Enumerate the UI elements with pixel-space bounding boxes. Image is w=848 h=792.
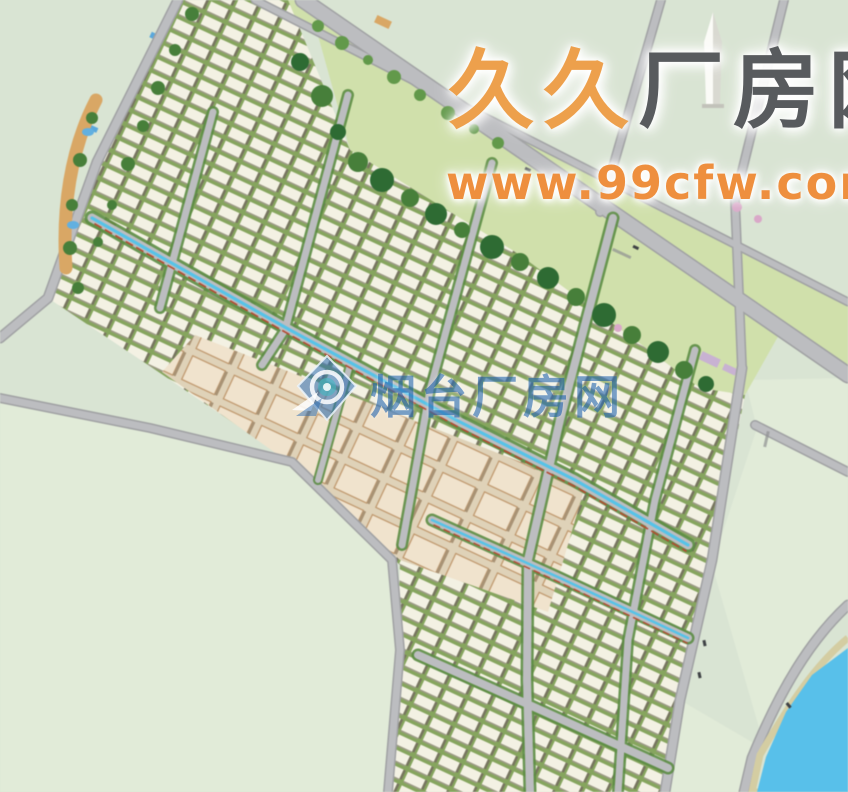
pond <box>82 128 94 136</box>
watermark-brand-orange: 久久 <box>448 41 638 141</box>
compass-diamond-logo-icon <box>292 350 362 438</box>
watermark-brand-gray: 厂房网 <box>638 41 848 141</box>
site-plan-screenshot: 久久厂房网 www.99cfw.com 烟台厂房网 <box>0 0 848 792</box>
pond <box>67 221 79 229</box>
watermark-brand: 久久厂房网 <box>448 48 848 134</box>
watermark-url: www.99cfw.com <box>446 156 848 210</box>
watermark-center: 烟台厂房网 <box>292 350 625 438</box>
watermark-center-site-name: 烟台厂房网 <box>370 361 625 427</box>
